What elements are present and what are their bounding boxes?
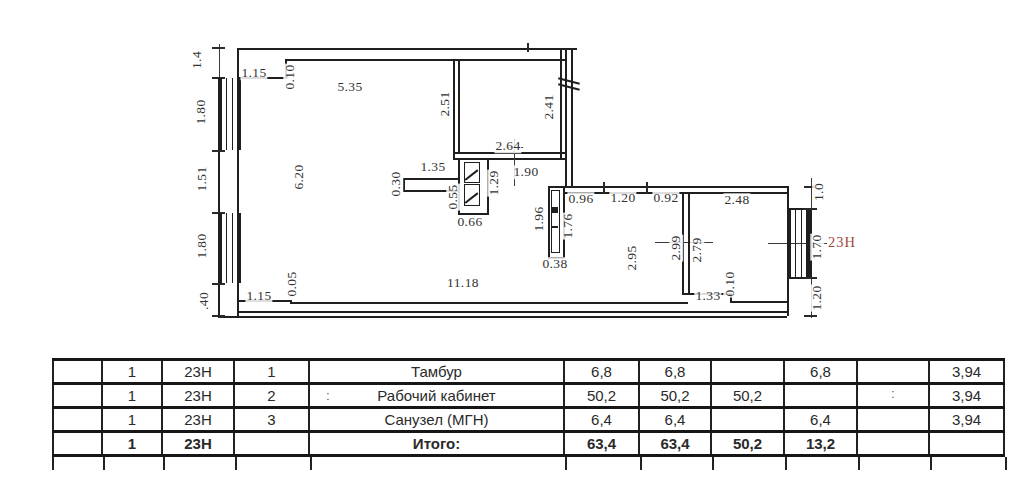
plan-line <box>787 186 789 210</box>
plan-line <box>804 315 817 317</box>
dimension-label: 0.30 <box>389 170 403 197</box>
plan-line <box>730 301 787 303</box>
table-cell: 50,2 <box>565 385 640 406</box>
dimension-label: 1.51 <box>195 165 209 192</box>
dimension-label: 0.66 <box>456 215 483 229</box>
plan-line <box>285 59 565 61</box>
plan-line <box>565 48 567 186</box>
dimension-label: 1.80 <box>195 232 209 259</box>
table-cell: 23Н <box>163 433 235 454</box>
dimension-label: 1.20 <box>609 191 636 205</box>
scanned-floor-plan-page: 23Н 1.41.801.511.80.401.150.105.356.202.… <box>0 0 1023 489</box>
table-cell: 3,94 <box>930 361 1005 382</box>
table-cell <box>52 385 103 406</box>
plan-line <box>237 311 787 313</box>
table-cell: 6,8 <box>565 361 640 382</box>
plan-line <box>458 59 460 152</box>
plan-line <box>212 315 225 317</box>
plan-line <box>548 186 787 188</box>
plan-line <box>290 300 292 304</box>
dimension-label: 2.51 <box>438 90 452 117</box>
table-cell <box>858 409 930 430</box>
dimension-label: 0.96 <box>567 192 594 206</box>
table-cell: 23Н <box>163 385 235 406</box>
plan-line <box>403 178 405 191</box>
table-cell: 1 <box>103 409 163 430</box>
dimension-label: 0.92 <box>652 191 679 205</box>
table-grid-stub <box>930 457 932 470</box>
table-cell: 50,2 <box>712 433 785 454</box>
dimension-label: 2.41 <box>542 93 556 120</box>
table-row: 123Н2Рабочий кабинет50,250,250,23,94 <box>52 382 1005 406</box>
table-cell <box>52 409 103 430</box>
table-cell <box>858 385 930 406</box>
table-cell <box>235 433 310 454</box>
table-cell: Рабочий кабинет <box>310 385 565 406</box>
table-cell: 50,2 <box>712 385 785 406</box>
dimension-label: 2.95 <box>625 244 639 271</box>
dimension-label: 0.05 <box>285 270 299 297</box>
plan-line <box>212 47 225 49</box>
dimension-label: 0.10 <box>723 270 737 297</box>
table-cell <box>712 409 785 430</box>
dimension-label: 2.99 <box>669 234 683 261</box>
table-cell: 6,4 <box>785 409 858 430</box>
table-row: 123НИтого:63,463,450,213,2 <box>52 430 1005 454</box>
table-row: 123Н1Тамбур6,86,86,83,94 <box>52 358 1005 382</box>
table-cell <box>930 433 1005 454</box>
dimension-label: 0.55 <box>446 183 460 210</box>
plan-line <box>403 178 462 180</box>
table-grid-stub <box>640 457 642 470</box>
table-cell <box>785 385 858 406</box>
plan-line <box>560 48 562 158</box>
plan-line <box>453 59 455 158</box>
table-cell: 23Н <box>163 409 235 430</box>
table-cell: 6,8 <box>785 361 858 382</box>
table-cell: 6,8 <box>640 361 712 382</box>
table-grid-stub <box>565 457 567 470</box>
dimension-label: 5.35 <box>336 80 363 94</box>
dimension-label: 1.0 <box>812 182 826 202</box>
dimension-label: 1.96 <box>532 205 546 232</box>
table-cell: 3,94 <box>930 385 1005 406</box>
table-grid-stub <box>235 457 237 470</box>
table-grid-stub <box>1005 457 1007 470</box>
table-cell: 2 <box>235 385 310 406</box>
table-grid-stub <box>52 457 54 470</box>
table-row: 123Н3Санузел (МГН)6,46,46,43,94 <box>52 406 1005 430</box>
table-cell <box>858 433 930 454</box>
dimension-label: 1.15 <box>245 289 272 303</box>
table-cell: 3 <box>235 409 310 430</box>
plan-line <box>787 277 789 316</box>
dimension-label: 0.38 <box>541 257 568 271</box>
dimension-label: 2.64 <box>494 139 521 153</box>
plan-line <box>551 207 558 213</box>
dimension-label: 1.35 <box>419 160 446 174</box>
dimension-label: 11.18 <box>446 276 480 290</box>
table-grid-stub <box>712 457 714 470</box>
table-cell: 1 <box>235 361 310 382</box>
dimension-label: 1.33 <box>694 289 721 303</box>
area-table: 123Н1Тамбур6,86,86,83,94123Н2Рабочий каб… <box>52 358 1005 457</box>
dimension-label: 1.90 <box>512 165 539 179</box>
plan-line <box>237 48 577 50</box>
table-cell: 1 <box>103 361 163 382</box>
dimension-label: 1.20 <box>810 284 824 311</box>
plan-line <box>646 182 648 194</box>
plan-line <box>212 150 225 152</box>
table-cell: 6,4 <box>640 409 712 430</box>
plan-line <box>218 316 787 318</box>
plan-line <box>655 242 713 243</box>
table-cell: Тамбур <box>310 361 565 382</box>
dimension-label: 1.15 <box>240 66 267 80</box>
dimension-label: 1.29 <box>487 169 501 196</box>
table-cell: 1 <box>103 385 163 406</box>
dimension-label: 6.20 <box>292 163 306 190</box>
dimension-label: 1.80 <box>194 98 208 125</box>
dimension-label: 1.70 <box>810 233 824 260</box>
dimension-label: .40 <box>197 291 211 311</box>
table-cell: Итого: <box>310 433 565 454</box>
table-cell <box>52 361 103 382</box>
table-cell: 13,2 <box>785 433 858 454</box>
table-cell <box>52 433 103 454</box>
unit-label-23n: 23Н <box>827 234 857 251</box>
table-grid-stub <box>858 457 860 470</box>
table-grid-stub <box>163 457 165 470</box>
table-cell: 63,4 <box>640 433 712 454</box>
dimension-label: 2.79 <box>690 236 704 263</box>
table-cell: 6,4 <box>565 409 640 430</box>
table-cell <box>858 361 930 382</box>
window-symbol <box>218 213 241 283</box>
window-symbol <box>787 210 812 277</box>
plan-line <box>571 48 573 186</box>
dimension-label: 1.4 <box>190 50 204 70</box>
table-cell: 1 <box>103 433 163 454</box>
dimension-label: 2.48 <box>723 193 750 207</box>
table-cell: 3,94 <box>930 409 1005 430</box>
plan-line <box>804 277 817 279</box>
plan-line <box>212 283 225 285</box>
dimension-label: 0.10 <box>283 63 297 90</box>
table-grid-stub <box>103 457 105 470</box>
table-cell: Санузел (МГН) <box>310 409 565 430</box>
table-grid-stub <box>310 457 312 470</box>
window-symbol <box>218 78 241 150</box>
plan-line <box>290 302 688 304</box>
table-cell: 63,4 <box>565 433 640 454</box>
plan-line <box>551 190 560 253</box>
table-cell <box>712 361 785 382</box>
table-cell: 23Н <box>163 361 235 382</box>
dimension-label: 1.76 <box>561 212 575 239</box>
plan-line <box>527 43 529 52</box>
table-cell: 50,2 <box>640 385 712 406</box>
plan-line <box>551 226 558 228</box>
table-grid-stub <box>785 457 787 470</box>
plan-line <box>603 182 605 194</box>
